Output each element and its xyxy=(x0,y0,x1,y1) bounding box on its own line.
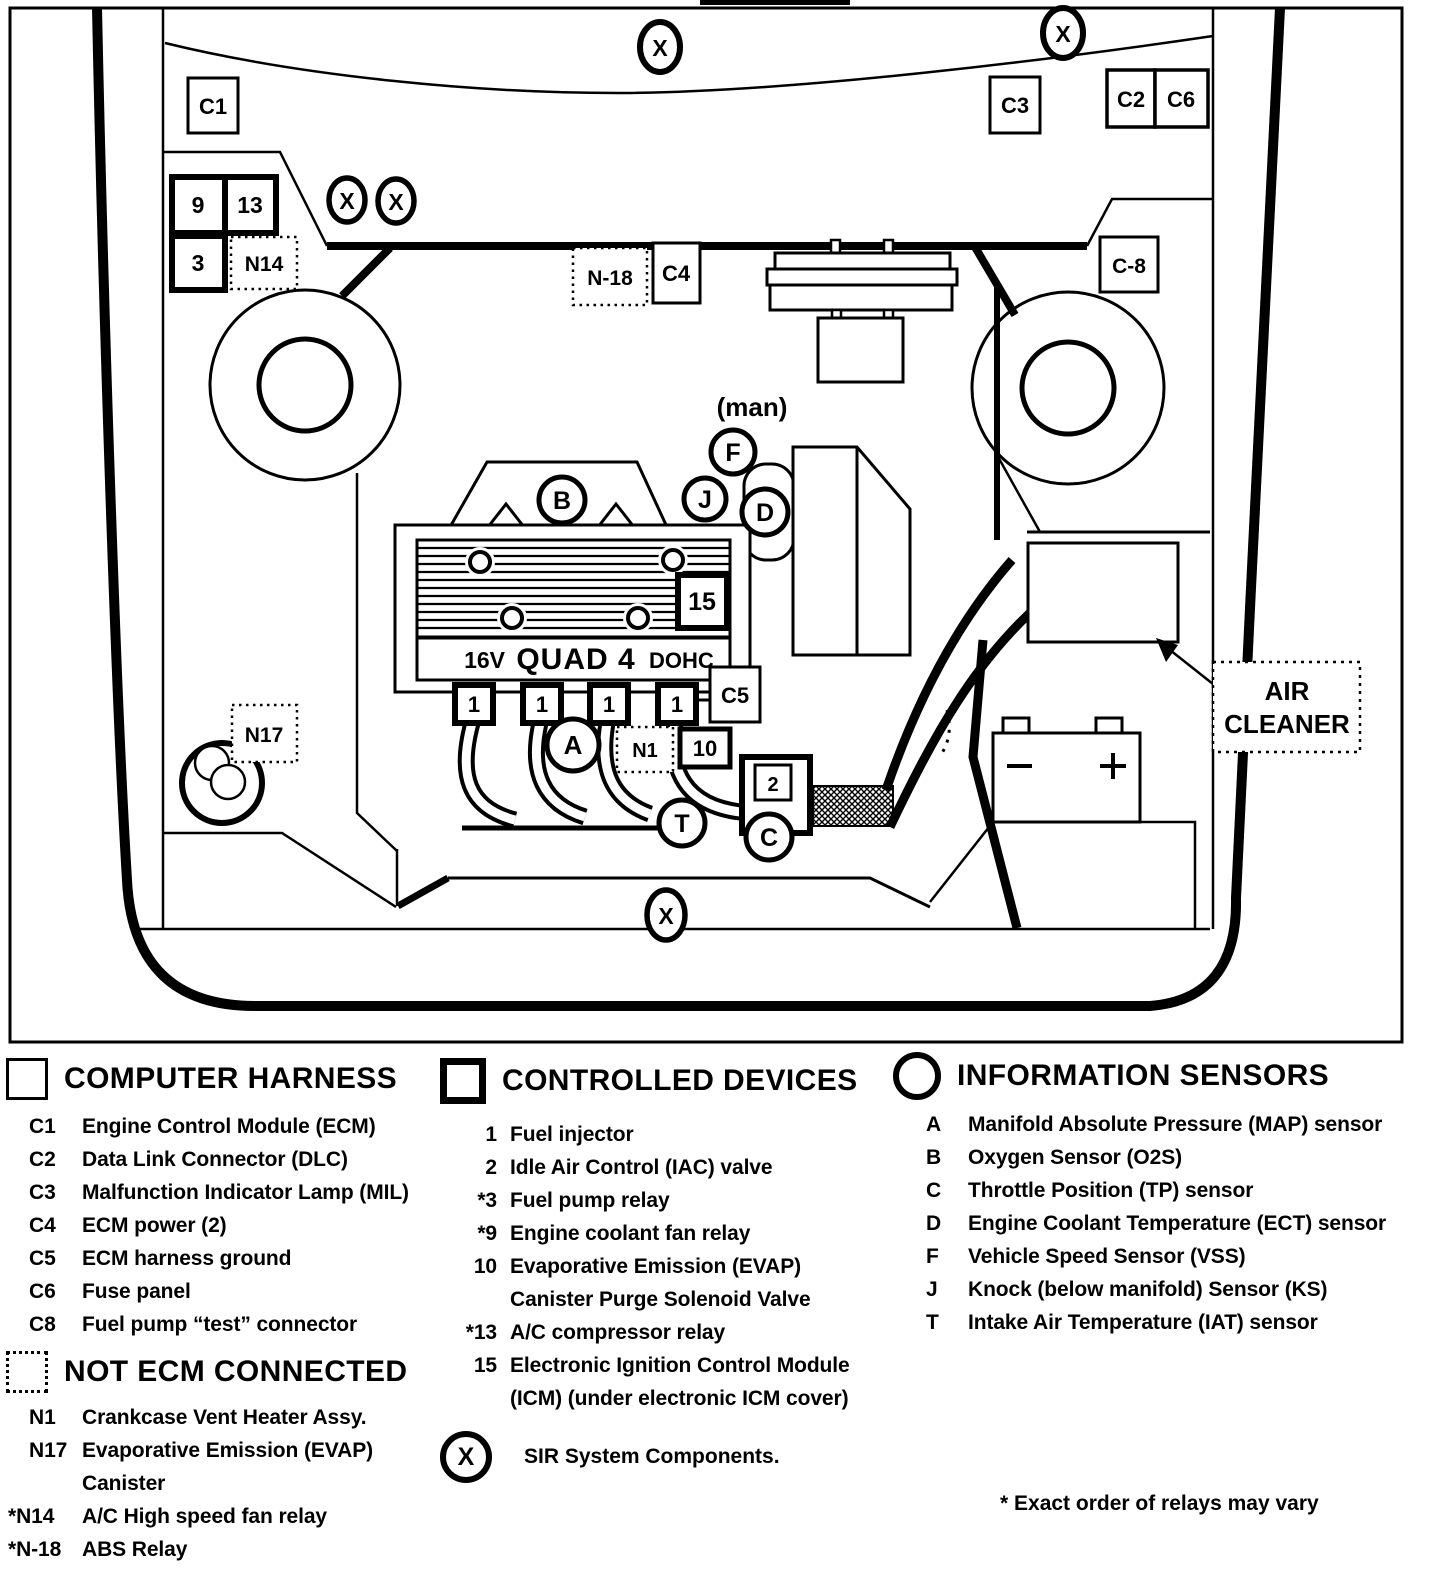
sir-note-row: X SIR System Components. xyxy=(440,1431,910,1483)
item-label: Fuel injector xyxy=(510,1118,910,1151)
callout-label-c5: C5 xyxy=(721,683,749,708)
callout-label-injector-4: 1 xyxy=(671,692,683,717)
item-code: F xyxy=(893,1240,968,1273)
item-label: Engine Control Module (ECM) xyxy=(82,1110,442,1143)
left-apron-seam xyxy=(357,473,397,851)
sir-marker-label-1: X xyxy=(339,188,355,214)
engine-label-dohc: DOHC xyxy=(649,648,714,673)
computer-harness-title: COMPUTER HARNESS xyxy=(64,1062,397,1096)
item-code: *9 xyxy=(440,1217,510,1250)
left-lower-shelf xyxy=(163,833,396,907)
legend-item-15: 15Electronic Ignition Control Module(ICM… xyxy=(440,1349,910,1415)
legend-information-sensors: INFORMATION SENSORS AManifold Absolute P… xyxy=(893,1052,1440,1339)
callout-label-tp-c: C xyxy=(760,824,778,852)
information-sensors-circle-icon xyxy=(893,1052,941,1100)
air-cleaner-box xyxy=(1028,543,1178,642)
callout-label-knock-j: J xyxy=(698,486,712,514)
cropped-text-remnant xyxy=(700,0,850,5)
item-code: C6 xyxy=(6,1275,82,1308)
callout-label-c4: C4 xyxy=(662,261,691,286)
engine-compartment-diagram: 16V QUAD 4 DOHC 15 1 1 1 1 xyxy=(0,0,1440,1046)
callout-label-n17: N17 xyxy=(245,724,284,747)
item-label: Fuse panel xyxy=(82,1275,442,1308)
item-code: *13 xyxy=(440,1316,510,1349)
item-code: N1 xyxy=(6,1401,82,1434)
battery-tray-right xyxy=(1140,822,1195,928)
item-code: C2 xyxy=(6,1143,82,1176)
callout-label-injector-1: 1 xyxy=(468,692,480,717)
item-label: Electronic Ignition Control Module(ICM) … xyxy=(510,1349,910,1415)
legend-item-n1: N1Crankcase Vent Heater Assy. xyxy=(6,1401,442,1434)
sir-marker-label-3: X xyxy=(652,35,668,61)
legend-item-n18: *N-18ABS Relay xyxy=(6,1533,442,1566)
item-label: Evaporative Emission (EVAP)Canister Purg… xyxy=(510,1250,910,1316)
item-label: ECM power (2) xyxy=(82,1209,442,1242)
callout-label-vss-f: F xyxy=(725,439,740,467)
legend-item-c5: C5ECM harness ground xyxy=(6,1242,442,1275)
legend-item-a: AManifold Absolute Pressure (MAP) sensor xyxy=(893,1108,1440,1141)
item-code: 1 xyxy=(440,1118,510,1151)
item-code: *3 xyxy=(440,1184,510,1217)
item-label: Engine coolant fan relay xyxy=(510,1217,910,1250)
item-label: Engine Coolant Temperature (ECT) sensor xyxy=(968,1207,1440,1240)
callout-label-10: 10 xyxy=(693,736,717,761)
not-ecm-title-row: NOT ECM CONNECTED xyxy=(6,1351,442,1393)
callout-label-9: 9 xyxy=(192,192,205,218)
legend-item-j: JKnock (below manifold) Sensor (KS) xyxy=(893,1273,1440,1306)
item-label: Knock (below manifold) Sensor (KS) xyxy=(968,1273,1440,1306)
item-code: C8 xyxy=(6,1308,82,1341)
item-label-line1: Evaporative Emission (EVAP) xyxy=(82,1434,442,1467)
item-code: N17 xyxy=(6,1434,82,1500)
not-ecm-title: NOT ECM CONNECTED xyxy=(64,1355,407,1389)
item-code: 10 xyxy=(440,1250,510,1316)
legend-item-d: DEngine Coolant Temperature (ECT) sensor xyxy=(893,1207,1440,1240)
item-code: D xyxy=(893,1207,968,1240)
callout-label-injector-3: 1 xyxy=(603,692,615,717)
item-code: C1 xyxy=(6,1110,82,1143)
item-label-line1: Electronic Ignition Control Module xyxy=(510,1349,910,1382)
legend-item-b: BOxygen Sensor (O2S) xyxy=(893,1141,1440,1174)
computer-harness-title-row: COMPUTER HARNESS xyxy=(6,1058,442,1100)
rail-left-brace xyxy=(342,248,390,296)
item-label: Data Link Connector (DLC) xyxy=(82,1143,442,1176)
battery-tray-left xyxy=(930,822,993,902)
callout-label-c6: C6 xyxy=(1167,87,1195,112)
brake-booster-stack xyxy=(767,240,957,382)
item-label: A/C compressor relay xyxy=(510,1316,910,1349)
legend-item-t: TIntake Air Temperature (IAT) sensor xyxy=(893,1306,1440,1339)
legend-controlled-devices: CONTROLLED DEVICES 1Fuel injector 2Idle … xyxy=(440,1058,910,1483)
item-label: Vehicle Speed Sensor (VSS) xyxy=(968,1240,1440,1273)
controlled-devices-square-icon xyxy=(440,1058,486,1104)
air-cleaner-label-line2: CLEANER xyxy=(1224,709,1350,739)
legend-item-c3: C3Malfunction Indicator Lamp (MIL) xyxy=(6,1176,442,1209)
left-strut-tower xyxy=(210,290,400,480)
air-cleaner-pointer xyxy=(1170,650,1213,684)
legend-item-f: FVehicle Speed Sensor (VSS) xyxy=(893,1240,1440,1273)
item-code: J xyxy=(893,1273,968,1306)
legend-item-c4: C4ECM power (2) xyxy=(6,1209,442,1242)
item-label: ABS Relay xyxy=(82,1533,442,1566)
engine-label-quad4: QUAD 4 xyxy=(516,643,635,676)
legend-item-2: 2Idle Air Control (IAC) valve xyxy=(440,1151,910,1184)
legend-item-10: 10Evaporative Emission (EVAP)Canister Pu… xyxy=(440,1250,910,1316)
callout-label-15: 15 xyxy=(688,588,716,616)
item-label: Intake Air Temperature (IAT) sensor xyxy=(968,1306,1440,1339)
item-label-line1: Evaporative Emission (EVAP) xyxy=(510,1250,910,1283)
item-code: A xyxy=(893,1108,968,1141)
cowl-left-diagonal xyxy=(398,878,448,906)
sir-note-label: SIR System Components. xyxy=(524,1445,780,1469)
item-label-line2: (ICM) (under electronic ICM cover) xyxy=(510,1382,910,1415)
callout-label-c3: C3 xyxy=(1001,93,1029,118)
item-code: 2 xyxy=(440,1151,510,1184)
computer-harness-square-icon xyxy=(6,1058,48,1100)
legend-item-3: *3Fuel pump relay xyxy=(440,1184,910,1217)
relay-order-footnote: * Exact order of relays may vary xyxy=(1000,1492,1319,1516)
callout-label-o2-b: B xyxy=(553,487,571,515)
item-label: Fuel pump “test” connector xyxy=(82,1308,442,1341)
item-code: 15 xyxy=(440,1349,510,1415)
legend-item-c8: C8Fuel pump “test” connector xyxy=(6,1308,442,1341)
item-label: Fuel pump relay xyxy=(510,1184,910,1217)
item-label-line2: Canister Purge Solenoid Valve xyxy=(510,1283,910,1316)
callout-label-injector-2: 1 xyxy=(536,692,548,717)
legend-item-9: *9Engine coolant fan relay xyxy=(440,1217,910,1250)
callout-label-n18: N-18 xyxy=(587,267,633,290)
sir-marker-label-5: X xyxy=(658,903,674,929)
legend-item-c6: C6Fuse panel xyxy=(6,1275,442,1308)
corrugated-duct xyxy=(813,786,893,826)
callout-label-c8: C-8 xyxy=(1112,255,1146,278)
legend-item-13: *13A/C compressor relay xyxy=(440,1316,910,1349)
item-label: Malfunction Indicator Lamp (MIL) xyxy=(82,1176,442,1209)
item-code: *N-18 xyxy=(6,1533,82,1566)
callout-label-2: 2 xyxy=(767,774,778,796)
item-label: Oxygen Sensor (O2S) xyxy=(968,1141,1440,1174)
callout-label-n14: N14 xyxy=(245,253,284,276)
engine-block-end xyxy=(793,447,910,655)
item-label: Idle Air Control (IAC) valve xyxy=(510,1151,910,1184)
item-code: B xyxy=(893,1141,968,1174)
legend-item-c1: C1Engine Control Module (ECM) xyxy=(6,1110,442,1143)
information-sensors-title: INFORMATION SENSORS xyxy=(957,1059,1329,1093)
callout-label-ect-d: D xyxy=(756,499,774,527)
item-code: T xyxy=(893,1306,968,1339)
not-ecm-dotted-square-icon xyxy=(6,1351,48,1393)
legend-item-c2: C2Data Link Connector (DLC) xyxy=(6,1143,442,1176)
callout-label-iat-t: T xyxy=(674,810,689,838)
item-code: *N14 xyxy=(6,1500,82,1533)
item-label: Evaporative Emission (EVAP)Canister xyxy=(82,1434,442,1500)
sir-marker-label-2: X xyxy=(388,189,404,215)
item-label: Manifold Absolute Pressure (MAP) sensor xyxy=(968,1108,1440,1141)
right-apron-diagonal xyxy=(997,455,1040,532)
controlled-devices-title: CONTROLLED DEVICES xyxy=(502,1064,858,1098)
man-transmission-note: (man) xyxy=(717,392,788,422)
engine-label-16v: 16V xyxy=(464,647,506,673)
sir-x-icon: X xyxy=(440,1431,492,1483)
controlled-devices-title-row: CONTROLLED DEVICES xyxy=(440,1058,910,1104)
legend-computer-harness: COMPUTER HARNESS C1Engine Control Module… xyxy=(6,1058,442,1566)
item-code: C5 xyxy=(6,1242,82,1275)
callout-label-map-a: A xyxy=(564,730,583,760)
item-label: Crankcase Vent Heater Assy. xyxy=(82,1401,442,1434)
item-label: ECM harness ground xyxy=(82,1242,442,1275)
evap-canister-port-2 xyxy=(211,765,245,799)
item-code: C4 xyxy=(6,1209,82,1242)
item-label-line2: Canister xyxy=(82,1467,442,1500)
information-sensors-title-row: INFORMATION SENSORS xyxy=(893,1052,1440,1100)
callout-label-3: 3 xyxy=(192,250,205,276)
item-code: C xyxy=(893,1174,968,1207)
sir-marker-label-4: X xyxy=(1055,21,1071,47)
callout-label-n1: N1 xyxy=(632,740,658,762)
legend-item-n14: *N14A/C High speed fan relay xyxy=(6,1500,442,1533)
component-locator-page: 16V QUAD 4 DOHC 15 1 1 1 1 xyxy=(0,0,1440,1580)
right-strut-tower xyxy=(972,292,1164,484)
legend-item-n17: N17Evaporative Emission (EVAP)Canister xyxy=(6,1434,442,1500)
legend-item-1: 1Fuel injector xyxy=(440,1118,910,1151)
legend-item-c: CThrottle Position (TP) sensor xyxy=(893,1174,1440,1207)
callout-label-c2: C2 xyxy=(1117,87,1145,112)
item-code: C3 xyxy=(6,1176,82,1209)
air-cleaner-label-line1: AIR xyxy=(1265,676,1310,706)
item-label: Throttle Position (TP) sensor xyxy=(968,1174,1440,1207)
cowl-shelf xyxy=(448,878,930,907)
callout-label-13: 13 xyxy=(237,192,263,218)
item-label: A/C High speed fan relay xyxy=(82,1500,442,1533)
callout-label-c1: C1 xyxy=(199,94,227,119)
